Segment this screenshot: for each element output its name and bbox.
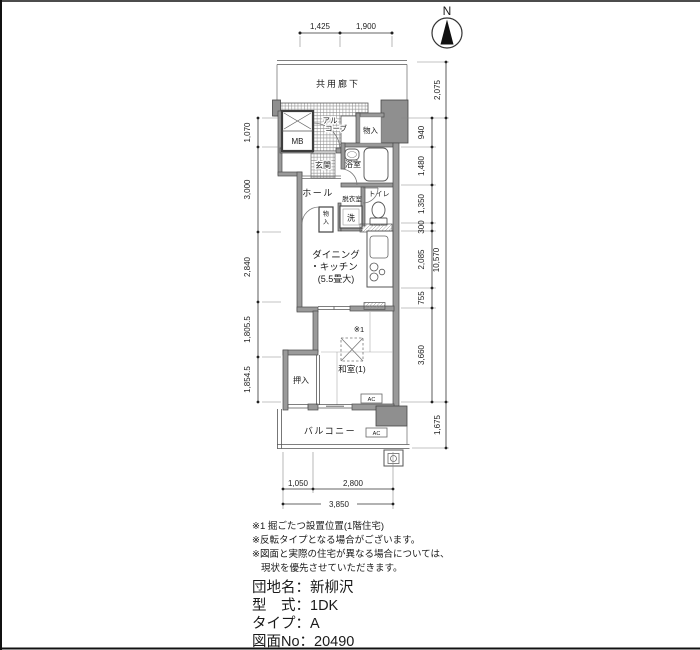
dim-top-1: 1,425: [310, 22, 331, 31]
kotatsu-ref-label: ※1: [354, 325, 364, 334]
meter-box: MB: [282, 111, 313, 151]
note-line-4: 現状を優先させていただきます。: [261, 562, 403, 574]
dim-right-2: 1,480: [417, 155, 426, 176]
dim-bottom-2: 2,800: [343, 479, 364, 488]
balcony-area: AC バルコニー: [277, 406, 410, 466]
ac-room: AC: [361, 394, 382, 403]
north-compass: N: [432, 4, 462, 48]
storage-top-label: 物入: [363, 125, 378, 135]
dim-right-outer-2: 10,570: [432, 247, 441, 272]
info-line-type: タイプ：A: [252, 615, 320, 632]
dim-right-3: 1,350: [417, 193, 426, 214]
balcony-label: バルコニー: [304, 426, 356, 436]
entrance-area: 玄関: [302, 153, 341, 179]
washer-label: 洗: [347, 213, 355, 223]
dk-label-1: ダイニング: [312, 249, 360, 261]
ac-balcony-label: AC: [373, 431, 381, 437]
dk-label-2: ・キッチン: [310, 262, 358, 273]
dim-right-4: 300: [417, 220, 426, 234]
north-label: N: [443, 4, 452, 18]
entrance-label: 玄関: [315, 160, 331, 170]
common-corridor: 共用廊下: [277, 61, 407, 104]
floor-plan-drawing: N 1,425 1,900 共用廊下 アル コーブ: [0, 0, 700, 650]
dim-left-5: 1,854.5: [243, 366, 252, 393]
note-line-3: ※図面と実際の住宅が異なる場合については、: [252, 548, 450, 560]
info-line-danchi: 団地名：新柳沢: [252, 579, 354, 596]
south-windows: [288, 405, 352, 409]
dim-right-1: 940: [417, 125, 426, 139]
info-line-zumen-no: 図面No：20490: [252, 633, 354, 650]
bathroom-label: 浴室: [345, 159, 361, 169]
dim-right-outer-1: 2,075: [433, 79, 442, 100]
dim-left-2: 3,000: [243, 179, 252, 200]
alcove-label-2: コーブ: [325, 123, 348, 133]
info-line-katashiki: 型 式：1DK: [252, 597, 339, 614]
toilet-bowl: [372, 202, 385, 218]
dimension-left: 1,070 3,000 2,840 1,805.5 1,854.5: [243, 117, 281, 404]
dim-right-5: 2,085: [417, 249, 426, 270]
toilet-label: トイレ: [369, 191, 390, 198]
ac-room-label: AC: [368, 397, 376, 403]
dim-left-4: 1,805.5: [243, 316, 252, 343]
note-line-2: ※反転タイプとなる場合がございます。: [252, 534, 420, 546]
dim-right-outer-3: 1,675: [433, 414, 442, 435]
floor-plan-page: N 1,425 1,900 共用廊下 アル コーブ: [0, 0, 700, 650]
dim-top-2: 1,900: [356, 22, 377, 31]
notes-block: ※1 掘ごたつ設置位置(1階住宅) ※反転タイプとなる場合がございます。 ※図面…: [252, 520, 450, 574]
corridor-label: 共用廊下: [316, 78, 360, 89]
closet-label: 押入: [293, 375, 309, 385]
dressing-label: 脱衣室: [342, 194, 362, 203]
info-block: 団地名：新柳沢 型 式：1DK タイプ：A 図面No：20490: [252, 579, 354, 650]
dimension-bottom: 1,050 2,800 3,850: [282, 452, 395, 509]
bathtub: [364, 148, 388, 181]
storage-top: 物入: [360, 117, 381, 143]
dressing-room: 脱衣室 洗: [340, 194, 362, 228]
column-top-right: [381, 100, 408, 143]
dim-right-7: 3,660: [417, 344, 426, 365]
japanese-room-label: 和室(1): [338, 364, 366, 374]
dining-kitchen: ダイニング ・キッチン (5.5畳大): [310, 249, 360, 284]
note-line-1: ※1 掘ごたつ設置位置(1階住宅): [252, 520, 384, 532]
dim-right-6: 755: [417, 291, 426, 305]
dim-bottom-1: 1,050: [288, 479, 309, 488]
closet-area: 押入: [293, 355, 320, 405]
meter-box-label: MB: [292, 137, 304, 146]
dimension-top: 1,425 1,900: [299, 22, 394, 47]
dim-left-1: 1,070: [243, 122, 252, 143]
kitchen-counter: [367, 231, 393, 287]
dim-bottom-total: 3,850: [329, 500, 350, 509]
bathroom-area: 浴室: [341, 148, 388, 185]
storage-hall: 物入: [302, 207, 333, 232]
balcony-wall-block: [376, 406, 407, 426]
hall-label: ホール: [302, 188, 334, 198]
dim-left-3: 2,840: [243, 256, 252, 277]
dk-label-3: (5.5畳大): [318, 273, 355, 284]
japanese-room: ※1 和室(1): [321, 312, 393, 405]
